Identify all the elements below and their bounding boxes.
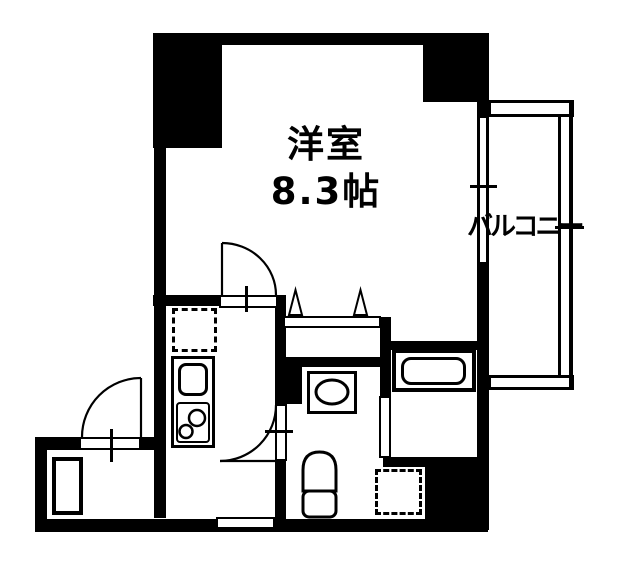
stove-burner-icon <box>180 425 193 438</box>
door-swing-arc-icon <box>82 378 141 437</box>
folding-door-triangle-icon <box>354 290 367 315</box>
folding-door-triangle-icon <box>289 290 302 315</box>
door-swing-arc-icon <box>220 405 276 461</box>
washbasin-bowl-icon <box>316 380 348 404</box>
door-swing-arc-icon <box>222 243 276 295</box>
room-label: 洋室 8.3帖 <box>206 121 446 215</box>
symbols-overlay <box>0 0 622 562</box>
room-name: 洋室 <box>206 121 446 168</box>
balcony-label: バルコニー <box>467 212 581 242</box>
room-size: 8.3帖 <box>206 168 446 215</box>
floor-plan: 洋室 8.3帖 バルコニー <box>0 0 622 562</box>
stove-burner-icon <box>189 410 205 426</box>
toilet-tank-icon <box>303 491 336 517</box>
toilet-icon <box>303 452 336 491</box>
